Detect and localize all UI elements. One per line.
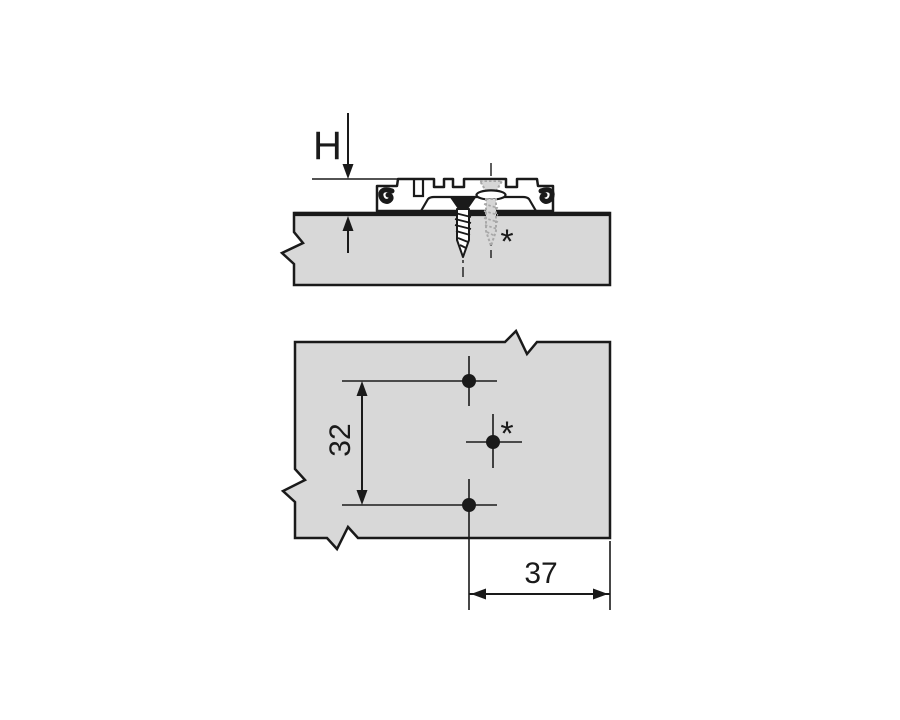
left-hook-icon [381,190,392,202]
panel-cross-section [282,213,610,285]
middle-drill-hole [486,435,500,449]
side-view: * H [282,113,610,285]
height-dimension-label: H [313,124,342,168]
technical-drawing: * H * 32 [0,0,900,720]
plan-view-asterisk-marker: * [500,415,513,453]
drawing-canvas: * H * 32 [0,0,900,720]
right-hook-icon [541,190,552,202]
vertical-spacing-label: 32 [324,423,357,456]
arrow-left-icon [471,589,486,600]
arrow-right-icon [593,589,608,600]
side-view-asterisk-marker: * [500,223,513,261]
top-drill-hole [462,374,476,388]
edge-distance-dimension: 37 [469,541,610,610]
arrow-down-icon [343,164,354,179]
edge-distance-label: 37 [524,557,557,590]
plan-view: * 32 37 [283,331,610,610]
bottom-drill-hole [462,498,476,512]
